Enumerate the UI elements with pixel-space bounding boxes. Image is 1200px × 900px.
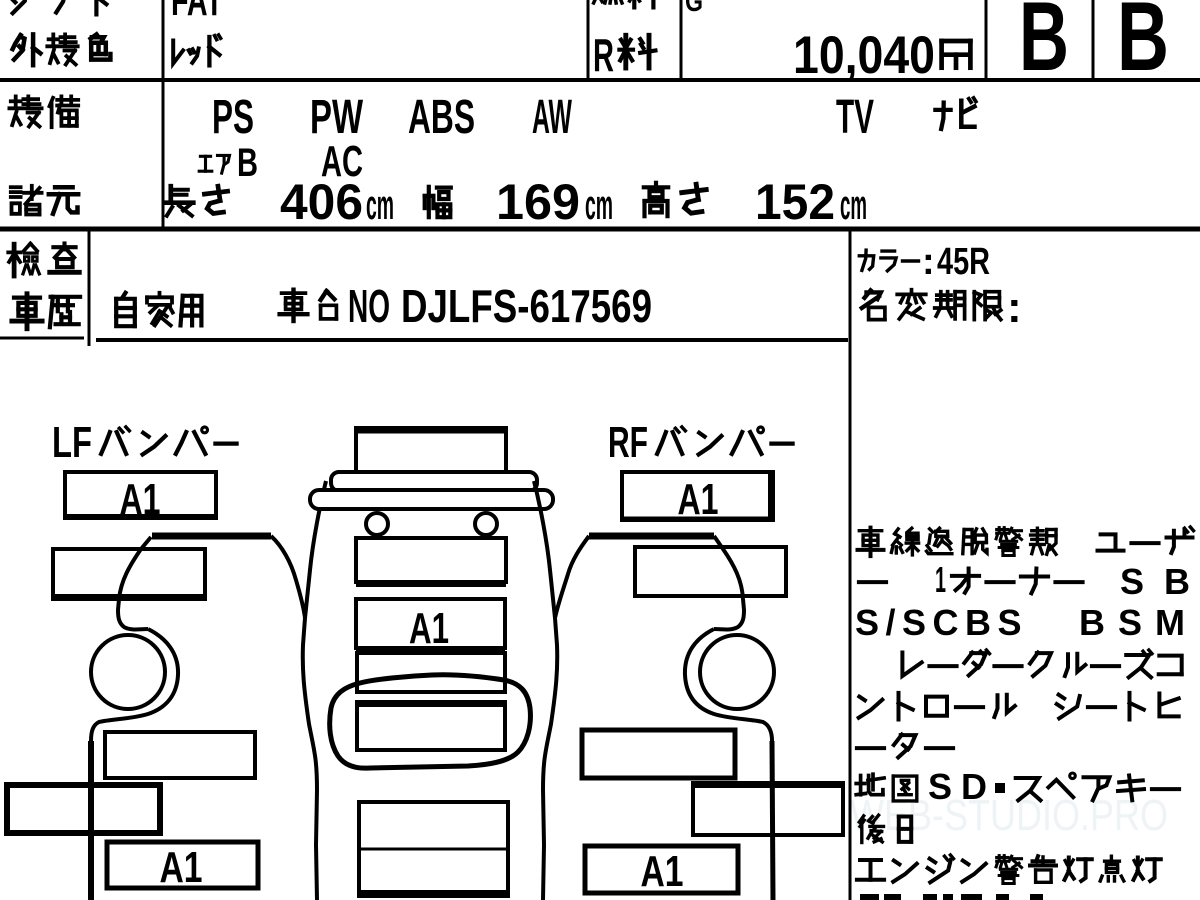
svg-text:TV: TV	[836, 91, 874, 144]
svg-text:1: 1	[935, 559, 946, 600]
svg-text:G: G	[685, 0, 703, 18]
svg-text:cm: cm	[840, 181, 867, 228]
svg-text:RF: RF	[608, 418, 648, 467]
svg-text:AW: AW	[532, 91, 572, 144]
svg-text:cm: cm	[585, 181, 613, 228]
svg-text:10,040: 10,040	[793, 26, 935, 85]
svg-text:PS: PS	[212, 91, 254, 144]
svg-text:152: 152	[755, 174, 835, 230]
svg-text:A1: A1	[120, 475, 161, 524]
svg-text:A1: A1	[409, 604, 449, 653]
svg-text:cm: cm	[366, 181, 394, 228]
svg-text:S/SCBS: S/SCBS	[855, 602, 1028, 643]
svg-text::: :	[1007, 283, 1022, 332]
svg-text:B: B	[1164, 561, 1190, 602]
svg-text:B: B	[1117, 0, 1169, 91]
svg-text::: :	[922, 241, 935, 283]
svg-text:A1: A1	[641, 847, 684, 896]
svg-text:45R: 45R	[937, 241, 990, 283]
svg-text:A1: A1	[160, 843, 203, 892]
svg-text:R: R	[593, 29, 614, 81]
svg-text:LF: LF	[52, 418, 92, 467]
svg-text:S: S	[1120, 561, 1144, 602]
svg-text:DJLFS-617569: DJLFS-617569	[401, 280, 652, 332]
svg-text:169: 169	[496, 174, 580, 230]
svg-text:B: B	[237, 141, 258, 185]
svg-text:FAT: FAT	[171, 0, 223, 25]
svg-text:NO: NO	[348, 280, 390, 332]
svg-text:A1: A1	[678, 475, 719, 524]
svg-text:B: B	[1019, 0, 1069, 91]
svg-text:ABS: ABS	[408, 91, 475, 144]
svg-text:D: D	[961, 766, 987, 807]
svg-text:406: 406	[280, 174, 363, 230]
svg-text:BSM: BSM	[1079, 602, 1198, 643]
svg-text:S: S	[928, 766, 952, 807]
